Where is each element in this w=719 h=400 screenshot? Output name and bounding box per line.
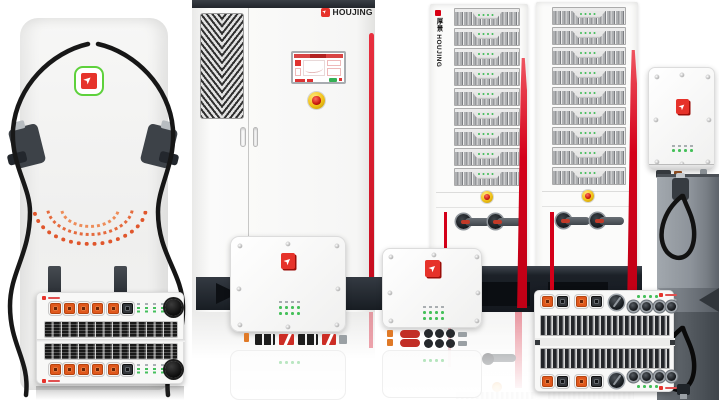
status-leds	[637, 385, 640, 388]
signal-connector	[556, 295, 569, 308]
module-seam	[37, 339, 185, 342]
screw	[238, 244, 242, 248]
power-module	[552, 47, 626, 65]
connector-terminal	[424, 329, 433, 338]
round-connector	[655, 372, 664, 381]
status-leds	[137, 368, 140, 370]
product-showcase: ➤ HOUJING 厚景 HOUJING	[0, 0, 719, 400]
dc-output-connector	[91, 302, 104, 315]
connector-terminal	[458, 332, 467, 337]
connector-terminal	[424, 339, 433, 348]
screw	[706, 75, 710, 79]
dc-output-connector	[107, 302, 120, 315]
dc-output-connector	[77, 302, 90, 315]
dc-output-connector	[91, 363, 104, 376]
power-module	[454, 28, 520, 46]
rotary-switch	[556, 213, 592, 229]
power-module	[454, 68, 520, 86]
rack-power-modules	[36, 292, 184, 384]
emergency-stop-button	[481, 191, 493, 203]
round-connector	[629, 372, 638, 381]
dc-connector	[541, 375, 554, 388]
module-stack	[454, 8, 520, 186]
brand-logo-icon: ➤	[321, 8, 330, 17]
screw	[680, 73, 684, 77]
connector-terminal	[244, 333, 249, 342]
screen-footer-bar	[295, 79, 305, 82]
screw	[389, 255, 393, 259]
door-handle	[253, 127, 259, 147]
switch-handle	[497, 218, 522, 226]
connector-terminal	[279, 334, 294, 345]
led-labels	[423, 306, 426, 308]
power-module	[454, 8, 520, 26]
round-connector	[667, 372, 676, 381]
dc-output-connector	[49, 363, 62, 376]
round-connector	[642, 302, 651, 311]
brand-logo-icon: ➤	[425, 260, 440, 277]
status-leds	[279, 312, 282, 315]
screen-header-title	[310, 54, 326, 58]
gun-tip-reflection	[677, 384, 690, 395]
connector-terminal	[400, 330, 420, 338]
led-labels	[137, 364, 140, 366]
ventilation-grille	[200, 13, 244, 119]
panel-seam	[542, 206, 632, 207]
door-handle	[240, 127, 246, 147]
power-module	[454, 88, 520, 106]
connector-terminal	[458, 341, 467, 346]
screen-logo	[295, 60, 301, 66]
connector-terminal	[339, 335, 347, 344]
wall-mounted-charger: ➤	[230, 236, 346, 332]
power-module	[454, 108, 520, 126]
status-leds	[423, 317, 426, 320]
signal-connector	[590, 295, 603, 308]
switch-handle	[465, 218, 490, 226]
screw	[237, 287, 241, 291]
rotary-knob	[609, 373, 624, 388]
wallbox-reflection	[382, 350, 482, 398]
connector-terminal	[387, 339, 393, 346]
round-connector	[667, 302, 676, 311]
panel-seam	[436, 207, 522, 208]
power-modules	[534, 290, 674, 392]
screw	[286, 242, 290, 246]
led-labels	[279, 301, 282, 303]
status-leds	[279, 306, 282, 309]
status-leds	[423, 311, 426, 314]
connector-terminal	[255, 334, 275, 345]
switch-handle	[565, 217, 590, 225]
module-stack	[552, 7, 626, 185]
screen-panel	[295, 68, 301, 76]
brand-logo-mini	[659, 293, 674, 297]
power-module	[552, 147, 626, 165]
red-stripe-reflection	[369, 312, 373, 348]
screw	[238, 323, 242, 327]
screw	[389, 319, 393, 323]
signal-connector	[590, 375, 603, 388]
dc-connector	[541, 295, 554, 308]
power-module	[552, 167, 626, 185]
screw	[654, 118, 658, 122]
round-port	[165, 361, 182, 378]
screw	[432, 253, 436, 257]
screw	[336, 287, 340, 291]
screw	[286, 325, 290, 329]
signal-connector	[121, 363, 134, 376]
touchscreen	[291, 51, 346, 84]
round-connector	[642, 372, 651, 381]
wallbox-reflection	[230, 350, 346, 400]
power-module	[454, 128, 520, 146]
panel-seam	[436, 192, 522, 193]
switch-handle	[599, 217, 624, 225]
red-accent-stripe	[369, 33, 374, 285]
seam-tab	[535, 340, 540, 345]
connector-terminal	[400, 339, 420, 347]
dc-connector	[575, 375, 588, 388]
dc-output-connector	[49, 302, 62, 315]
power-module	[552, 27, 626, 45]
rotary-knob	[609, 295, 624, 310]
signal-connector	[556, 375, 569, 388]
status-leds	[637, 295, 640, 298]
charger-reflection	[36, 386, 184, 400]
led-labels	[672, 145, 675, 147]
power-module	[552, 67, 626, 85]
screw	[707, 118, 711, 122]
screen-alarm-dot	[339, 78, 342, 81]
wall-mounted-charger: ➤	[382, 248, 482, 328]
screw	[388, 291, 392, 295]
brand-logo-icon	[435, 10, 441, 16]
led-labels	[137, 303, 140, 305]
gun-holster	[140, 117, 187, 171]
rotary-switch	[456, 214, 492, 230]
screw	[335, 323, 339, 327]
screw	[655, 75, 659, 79]
module-seam	[535, 338, 675, 346]
screw	[475, 255, 479, 259]
gun-tip-reflection	[680, 394, 687, 399]
power-module	[454, 148, 520, 166]
screen-panel	[327, 60, 341, 66]
power-module	[552, 7, 626, 25]
cable-loop	[662, 196, 695, 258]
emergency-stop-button	[308, 92, 325, 109]
power-module	[552, 87, 626, 105]
vent-grille	[540, 315, 670, 336]
rotary-switch	[590, 213, 626, 229]
vent-grille	[540, 348, 670, 369]
rack-side-label-text: 厚景 HOUJING	[433, 18, 443, 67]
brand-logo-mini	[42, 379, 57, 383]
emergency-stop-button	[582, 190, 594, 202]
screen-ok-button	[329, 78, 337, 82]
brand-logo-icon: ➤	[676, 99, 689, 114]
screw	[335, 244, 339, 248]
power-module	[454, 48, 520, 66]
screw	[476, 291, 480, 295]
power-module	[454, 168, 520, 186]
connector-terminal	[298, 334, 318, 345]
round-connector	[629, 302, 638, 311]
reflection-fade	[231, 351, 345, 399]
power-module	[552, 127, 626, 145]
seam-tab	[670, 340, 675, 345]
brand-logo-text: HOUJING	[333, 7, 373, 17]
brand-logo-mini	[42, 296, 57, 300]
dc-output-connector	[63, 302, 76, 315]
signal-connector	[121, 302, 134, 315]
status-leds	[137, 307, 140, 309]
dc-output-connector	[77, 363, 90, 376]
round-port	[165, 299, 182, 316]
status-leds	[672, 149, 675, 152]
vent-grille	[44, 343, 178, 360]
rack-side-label: 厚景 HOUJING	[433, 10, 443, 67]
wall-mounted-controller: ➤	[648, 67, 715, 170]
screw	[475, 319, 479, 323]
dc-output-connector	[63, 363, 76, 376]
connector-terminal	[387, 330, 393, 337]
brand-logo-mini	[659, 386, 674, 390]
dc-connector	[575, 295, 588, 308]
reflection-fade	[383, 351, 481, 397]
round-connector	[655, 302, 664, 311]
vent-grille	[44, 321, 178, 338]
screen-panel	[327, 68, 341, 76]
gun-holster	[0, 117, 46, 171]
brand-logo-icon: ➤	[281, 253, 295, 269]
brand-logo: ➤ HOUJING	[321, 7, 373, 17]
screen-footer-bar	[307, 79, 313, 82]
dc-output-connector	[107, 363, 120, 376]
connector-terminal	[322, 334, 336, 345]
power-module	[552, 107, 626, 125]
